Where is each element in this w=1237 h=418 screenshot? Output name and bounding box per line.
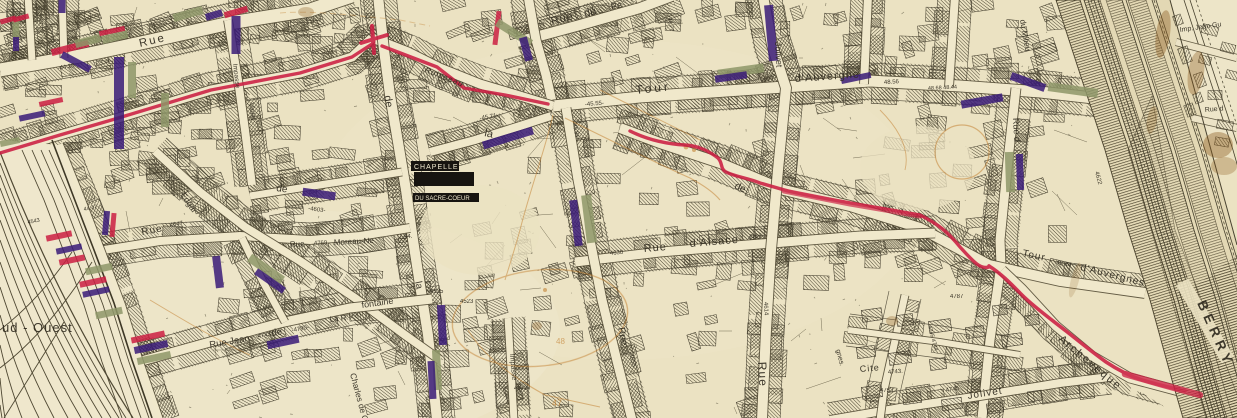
svg-text:4523: 4523 <box>460 299 474 305</box>
svg-text:de: de <box>276 183 289 196</box>
svg-text:Rue: Rue <box>755 361 770 387</box>
svg-text:de: de <box>381 94 395 108</box>
svg-text:de: de <box>271 326 283 339</box>
svg-text:4787: 4787 <box>950 294 964 300</box>
svg-text:DU SACRE-COEUR: DU SACRE-COEUR <box>415 196 470 202</box>
svg-text:4769: 4769 <box>314 240 328 247</box>
svg-text:48.56: 48.56 <box>884 79 900 86</box>
svg-text:Rue: Rue <box>643 241 667 255</box>
svg-text:4753: 4753 <box>880 388 894 394</box>
svg-text:Jolivet: Jolivet <box>773 42 784 68</box>
svg-text:Cite: Cite <box>859 362 880 374</box>
svg-text:4630: 4630 <box>610 250 624 257</box>
svg-text:CHAPELLE: CHAPELLE <box>414 164 459 171</box>
svg-text:4592: 4592 <box>748 235 762 242</box>
svg-text:48: 48 <box>556 337 565 346</box>
svg-text:ud - Ouest: ud - Ouest <box>2 320 73 335</box>
svg-text:4672: 4672 <box>514 386 528 392</box>
svg-text:Rue: Rue <box>290 239 306 249</box>
svg-text:La R: La R <box>329 313 347 324</box>
svg-text:47: 47 <box>552 398 562 408</box>
svg-text:Rue d: Rue d <box>1011 118 1022 143</box>
svg-text:44.: 44. <box>404 234 413 240</box>
svg-text:4525: 4525 <box>430 289 444 295</box>
svg-text:4614: 4614 <box>762 302 769 316</box>
